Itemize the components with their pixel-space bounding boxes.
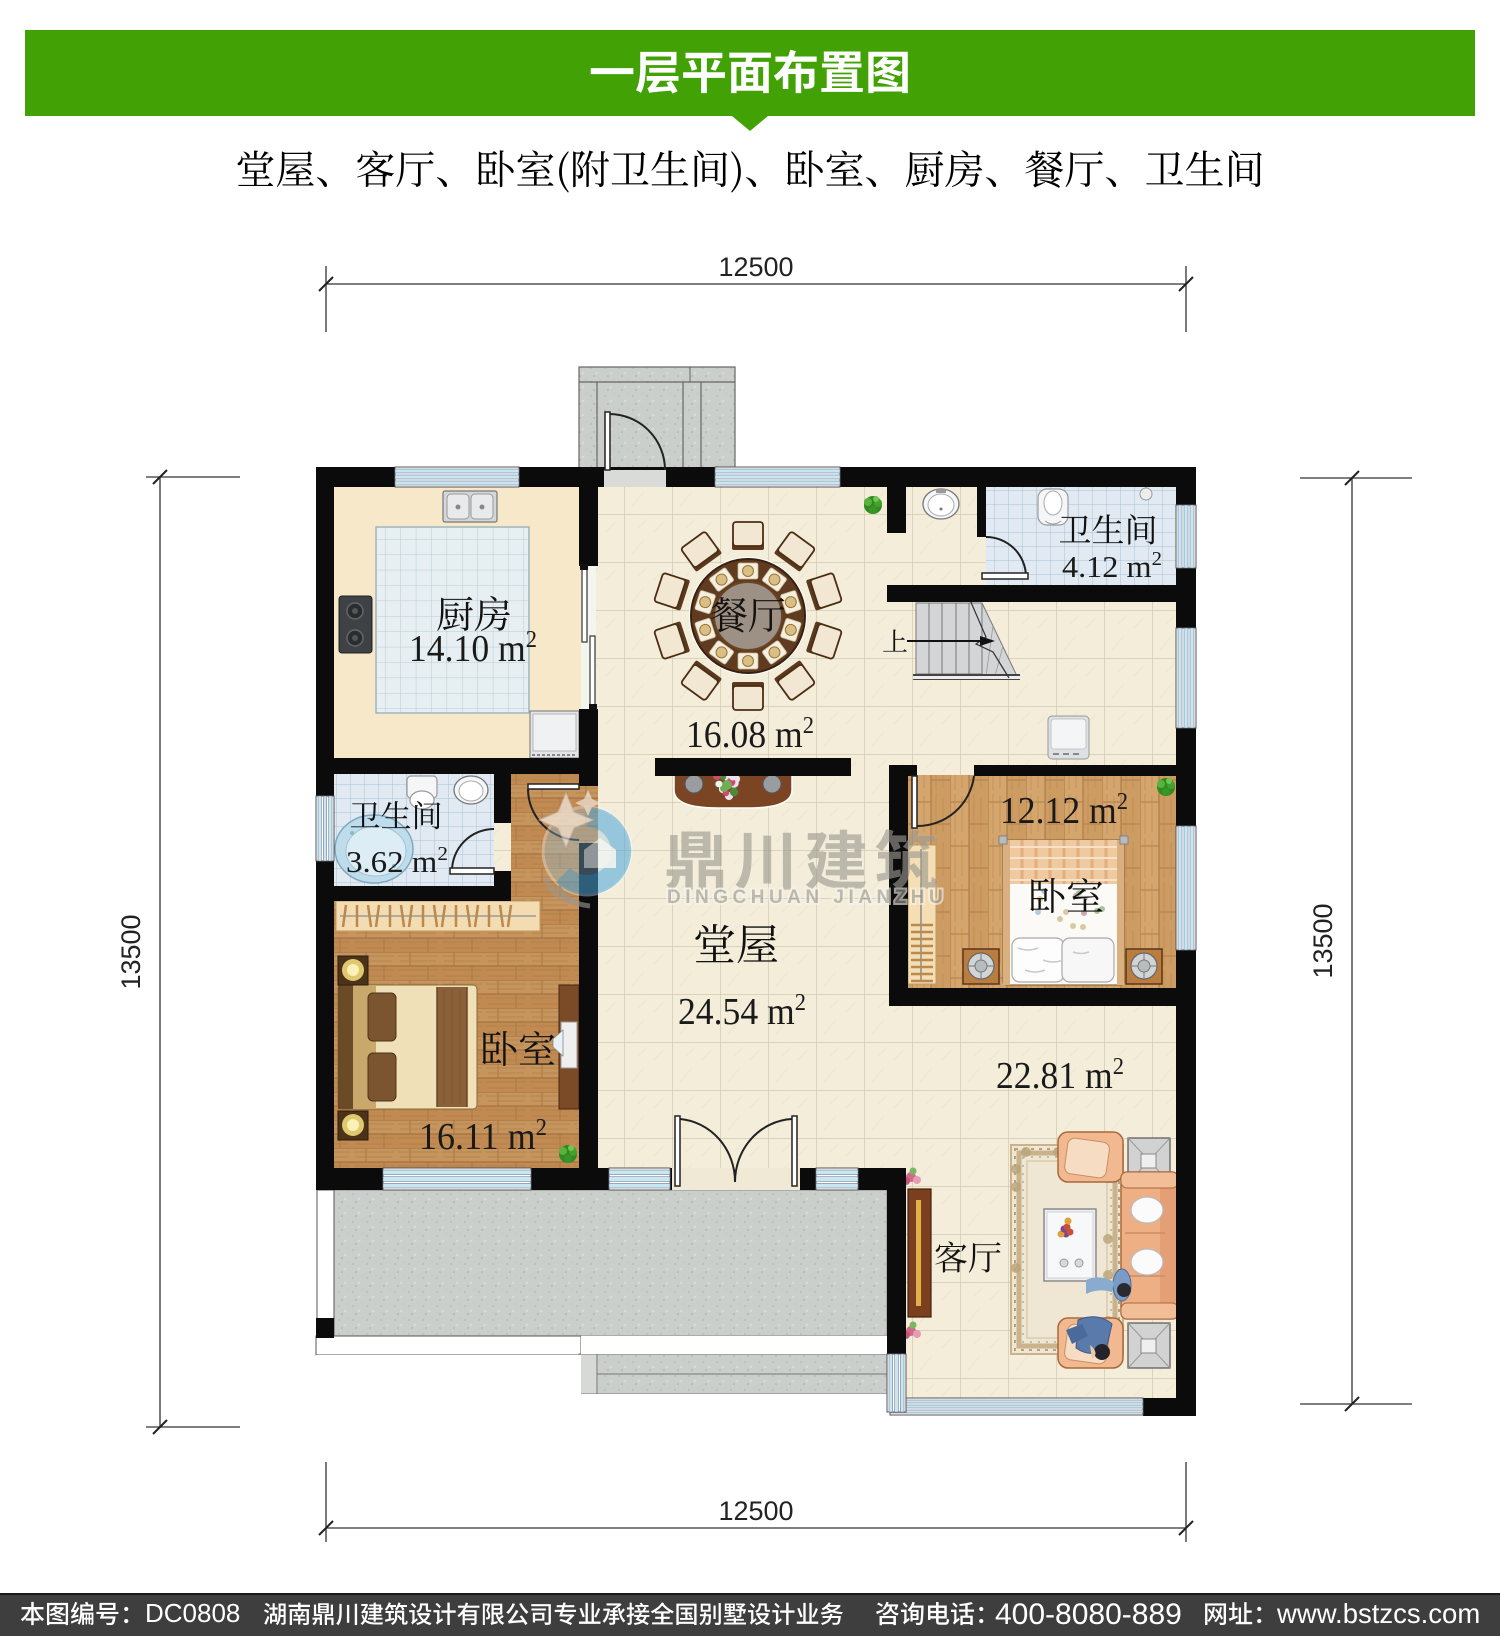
svg-text:12.12 m2: 12.12 m2 bbox=[1000, 789, 1128, 832]
svg-text:16.11 m2: 16.11 m2 bbox=[419, 1115, 547, 1158]
svg-text:400-8080-889: 400-8080-889 bbox=[995, 1598, 1182, 1631]
svg-text:22.81 m2: 22.81 m2 bbox=[996, 1054, 1124, 1097]
svg-text:4.12 m2: 4.12 m2 bbox=[1062, 548, 1162, 584]
svg-text:13500: 13500 bbox=[116, 914, 146, 989]
svg-text:12500: 12500 bbox=[718, 1496, 793, 1526]
svg-text:DC0808: DC0808 bbox=[145, 1598, 240, 1628]
svg-text:16.08 m2: 16.08 m2 bbox=[686, 713, 814, 756]
svg-text:13500: 13500 bbox=[1308, 903, 1338, 978]
svg-text:12500: 12500 bbox=[718, 252, 793, 282]
svg-text:DINGCHUAN JIANZHU: DINGCHUAN JIANZHU bbox=[667, 887, 947, 908]
svg-text:3.62 m2: 3.62 m2 bbox=[346, 843, 448, 879]
svg-text:24.54 m2: 24.54 m2 bbox=[678, 990, 806, 1033]
svg-text:14.10 m2: 14.10 m2 bbox=[409, 627, 537, 670]
svg-text:www.bstzcs.com: www.bstzcs.com bbox=[1276, 1598, 1480, 1629]
